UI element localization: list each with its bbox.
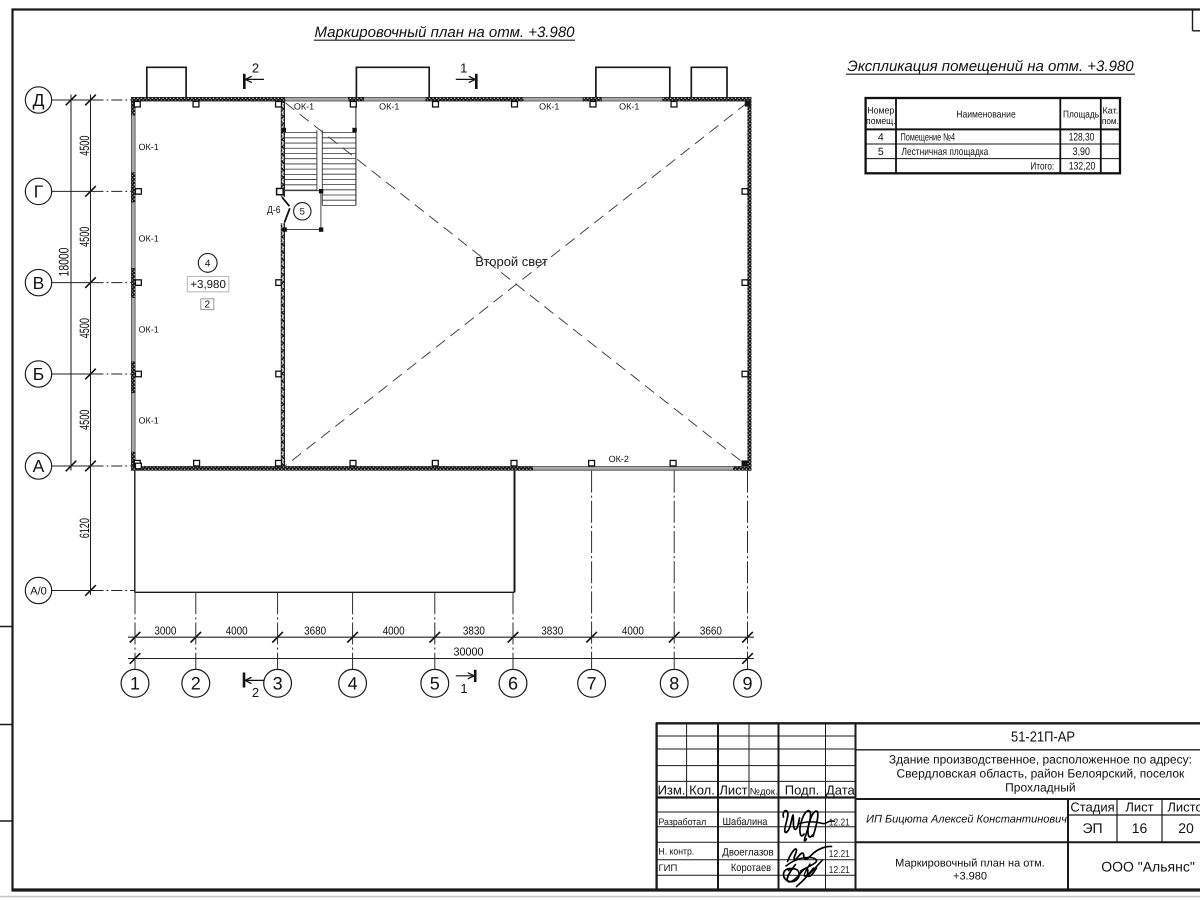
svg-text:Маркировочный план на отм. +3.: Маркировочный план на отм. +3.980 — [314, 24, 575, 41]
svg-text:7: 7 — [587, 674, 597, 694]
svg-text:Изм.: Изм. — [658, 782, 686, 797]
svg-text:Экспликация помещений на отм.: Экспликация помещений на отм. +3.980 — [847, 58, 1134, 75]
svg-text:16: 16 — [1132, 820, 1148, 836]
svg-text:2: 2 — [205, 299, 211, 310]
svg-text:Свердловская область, район Бе: Свердловская область, район Белоярский, … — [896, 767, 1185, 781]
svg-text:Подп.: Подп. — [785, 782, 820, 797]
svg-text:Прохладный: Прохладный — [1005, 781, 1075, 795]
svg-text:Шабалина: Шабалина — [723, 816, 768, 828]
svg-text:3: 3 — [273, 674, 283, 694]
svg-text:5: 5 — [878, 146, 884, 158]
svg-text:Разработал: Разработал — [659, 817, 707, 828]
svg-text:+3,980: +3,980 — [190, 279, 226, 291]
svg-text:1: 1 — [460, 681, 467, 696]
svg-text:Номер: Номер — [867, 106, 894, 117]
svg-text:12.21: 12.21 — [829, 865, 850, 876]
svg-text:4500: 4500 — [77, 227, 92, 247]
svg-text:128,30: 128,30 — [1069, 132, 1095, 144]
svg-text:Наименование: Наименование — [956, 109, 1016, 120]
svg-text:А: А — [33, 456, 45, 476]
svg-text:ИП Бицюта Алексей Константинов: ИП Бицюта Алексей Константинович — [866, 814, 1067, 826]
svg-text:12.21: 12.21 — [829, 849, 850, 860]
svg-text:Стадия: Стадия — [1070, 800, 1114, 815]
svg-text:4: 4 — [348, 674, 358, 694]
svg-text:ООО "Альянс": ООО "Альянс" — [1101, 858, 1195, 874]
svg-text:3830: 3830 — [541, 626, 563, 638]
svg-text:4: 4 — [878, 132, 884, 144]
svg-text:ОК-1: ОК-1 — [139, 416, 159, 426]
svg-text:ОК-1: ОК-1 — [139, 234, 159, 244]
svg-text:5: 5 — [300, 207, 305, 218]
svg-text:Помещение №4: Помещение №4 — [901, 132, 956, 144]
svg-text:Г: Г — [34, 182, 44, 202]
svg-text:Лестничная площадка: Лестничная площадка — [902, 146, 989, 158]
svg-text:№док.: №док. — [750, 786, 778, 797]
svg-text:А/0: А/0 — [30, 585, 47, 597]
svg-text:1: 1 — [460, 61, 467, 76]
svg-text:20: 20 — [1178, 820, 1194, 836]
svg-text:Лист: Лист — [1125, 800, 1153, 815]
svg-text:Итого:: Итого: — [1030, 161, 1054, 173]
svg-text:51-21П-АР: 51-21П-АР — [1011, 729, 1075, 745]
svg-text:8: 8 — [669, 674, 679, 694]
svg-text:Д: Д — [33, 90, 45, 110]
svg-text:Листов: Листов — [1167, 800, 1200, 815]
svg-text:ГИП: ГИП — [659, 863, 678, 874]
svg-text:Лист: Лист — [719, 782, 747, 797]
svg-text:3680: 3680 — [304, 626, 326, 638]
svg-text:2: 2 — [191, 674, 201, 694]
svg-text:Площадь: Площадь — [1063, 109, 1099, 120]
svg-text:30000: 30000 — [454, 647, 484, 659]
svg-text:Б: Б — [33, 364, 44, 384]
svg-text:Двоеглазов: Двоеглазов — [722, 846, 774, 858]
svg-text:+3.980: +3.980 — [953, 870, 987, 882]
svg-text:ОК-1: ОК-1 — [539, 101, 559, 111]
svg-text:ОК-1: ОК-1 — [294, 101, 314, 111]
svg-text:2: 2 — [252, 61, 259, 76]
svg-text:ОК-1: ОК-1 — [619, 101, 639, 111]
svg-text:18000: 18000 — [55, 247, 71, 276]
svg-text:4000: 4000 — [622, 626, 644, 638]
svg-text:Кол.: Кол. — [689, 782, 715, 797]
svg-text:ОК-1: ОК-1 — [139, 142, 159, 152]
svg-text:ОК-1: ОК-1 — [379, 101, 399, 111]
svg-text:Здание производственное, распо: Здание производственное, расположенное п… — [889, 753, 1192, 767]
svg-text:Д-6: Д-6 — [267, 205, 281, 216]
svg-text:6120: 6120 — [77, 518, 92, 538]
svg-text:9: 9 — [742, 674, 752, 694]
svg-text:12.21: 12.21 — [829, 817, 850, 828]
svg-text:ЭП: ЭП — [1082, 820, 1102, 836]
svg-text:В: В — [33, 273, 45, 293]
svg-text:4: 4 — [205, 259, 211, 270]
svg-text:ОК-1: ОК-1 — [139, 325, 159, 335]
svg-text:2: 2 — [252, 685, 259, 700]
svg-text:Коротаев: Коротаев — [731, 862, 772, 874]
svg-text:5: 5 — [430, 674, 440, 694]
svg-text:Н. контр.: Н. контр. — [659, 847, 695, 858]
svg-text:Второй свет: Второй свет — [475, 254, 548, 269]
svg-text:ОК-2: ОК-2 — [609, 454, 629, 464]
svg-text:6: 6 — [508, 674, 518, 694]
svg-text:Маркировочный план на отм.: Маркировочный план на отм. — [895, 857, 1045, 869]
svg-text:4500: 4500 — [77, 410, 92, 430]
svg-text:3000: 3000 — [154, 626, 176, 638]
svg-text:132,20: 132,20 — [1069, 161, 1096, 173]
svg-text:помещ.: помещ. — [866, 116, 896, 127]
svg-text:1: 1 — [130, 674, 140, 694]
svg-text:пом.: пом. — [1102, 116, 1119, 126]
svg-text:4500: 4500 — [77, 318, 92, 338]
svg-text:3,90: 3,90 — [1073, 146, 1090, 158]
svg-text:4000: 4000 — [226, 626, 248, 638]
svg-text:Дата: Дата — [826, 782, 856, 797]
svg-text:3660: 3660 — [700, 626, 722, 638]
svg-text:3830: 3830 — [463, 626, 485, 638]
svg-text:Кат.: Кат. — [1103, 106, 1119, 116]
svg-text:4500: 4500 — [77, 136, 92, 156]
svg-text:4000: 4000 — [383, 626, 405, 638]
